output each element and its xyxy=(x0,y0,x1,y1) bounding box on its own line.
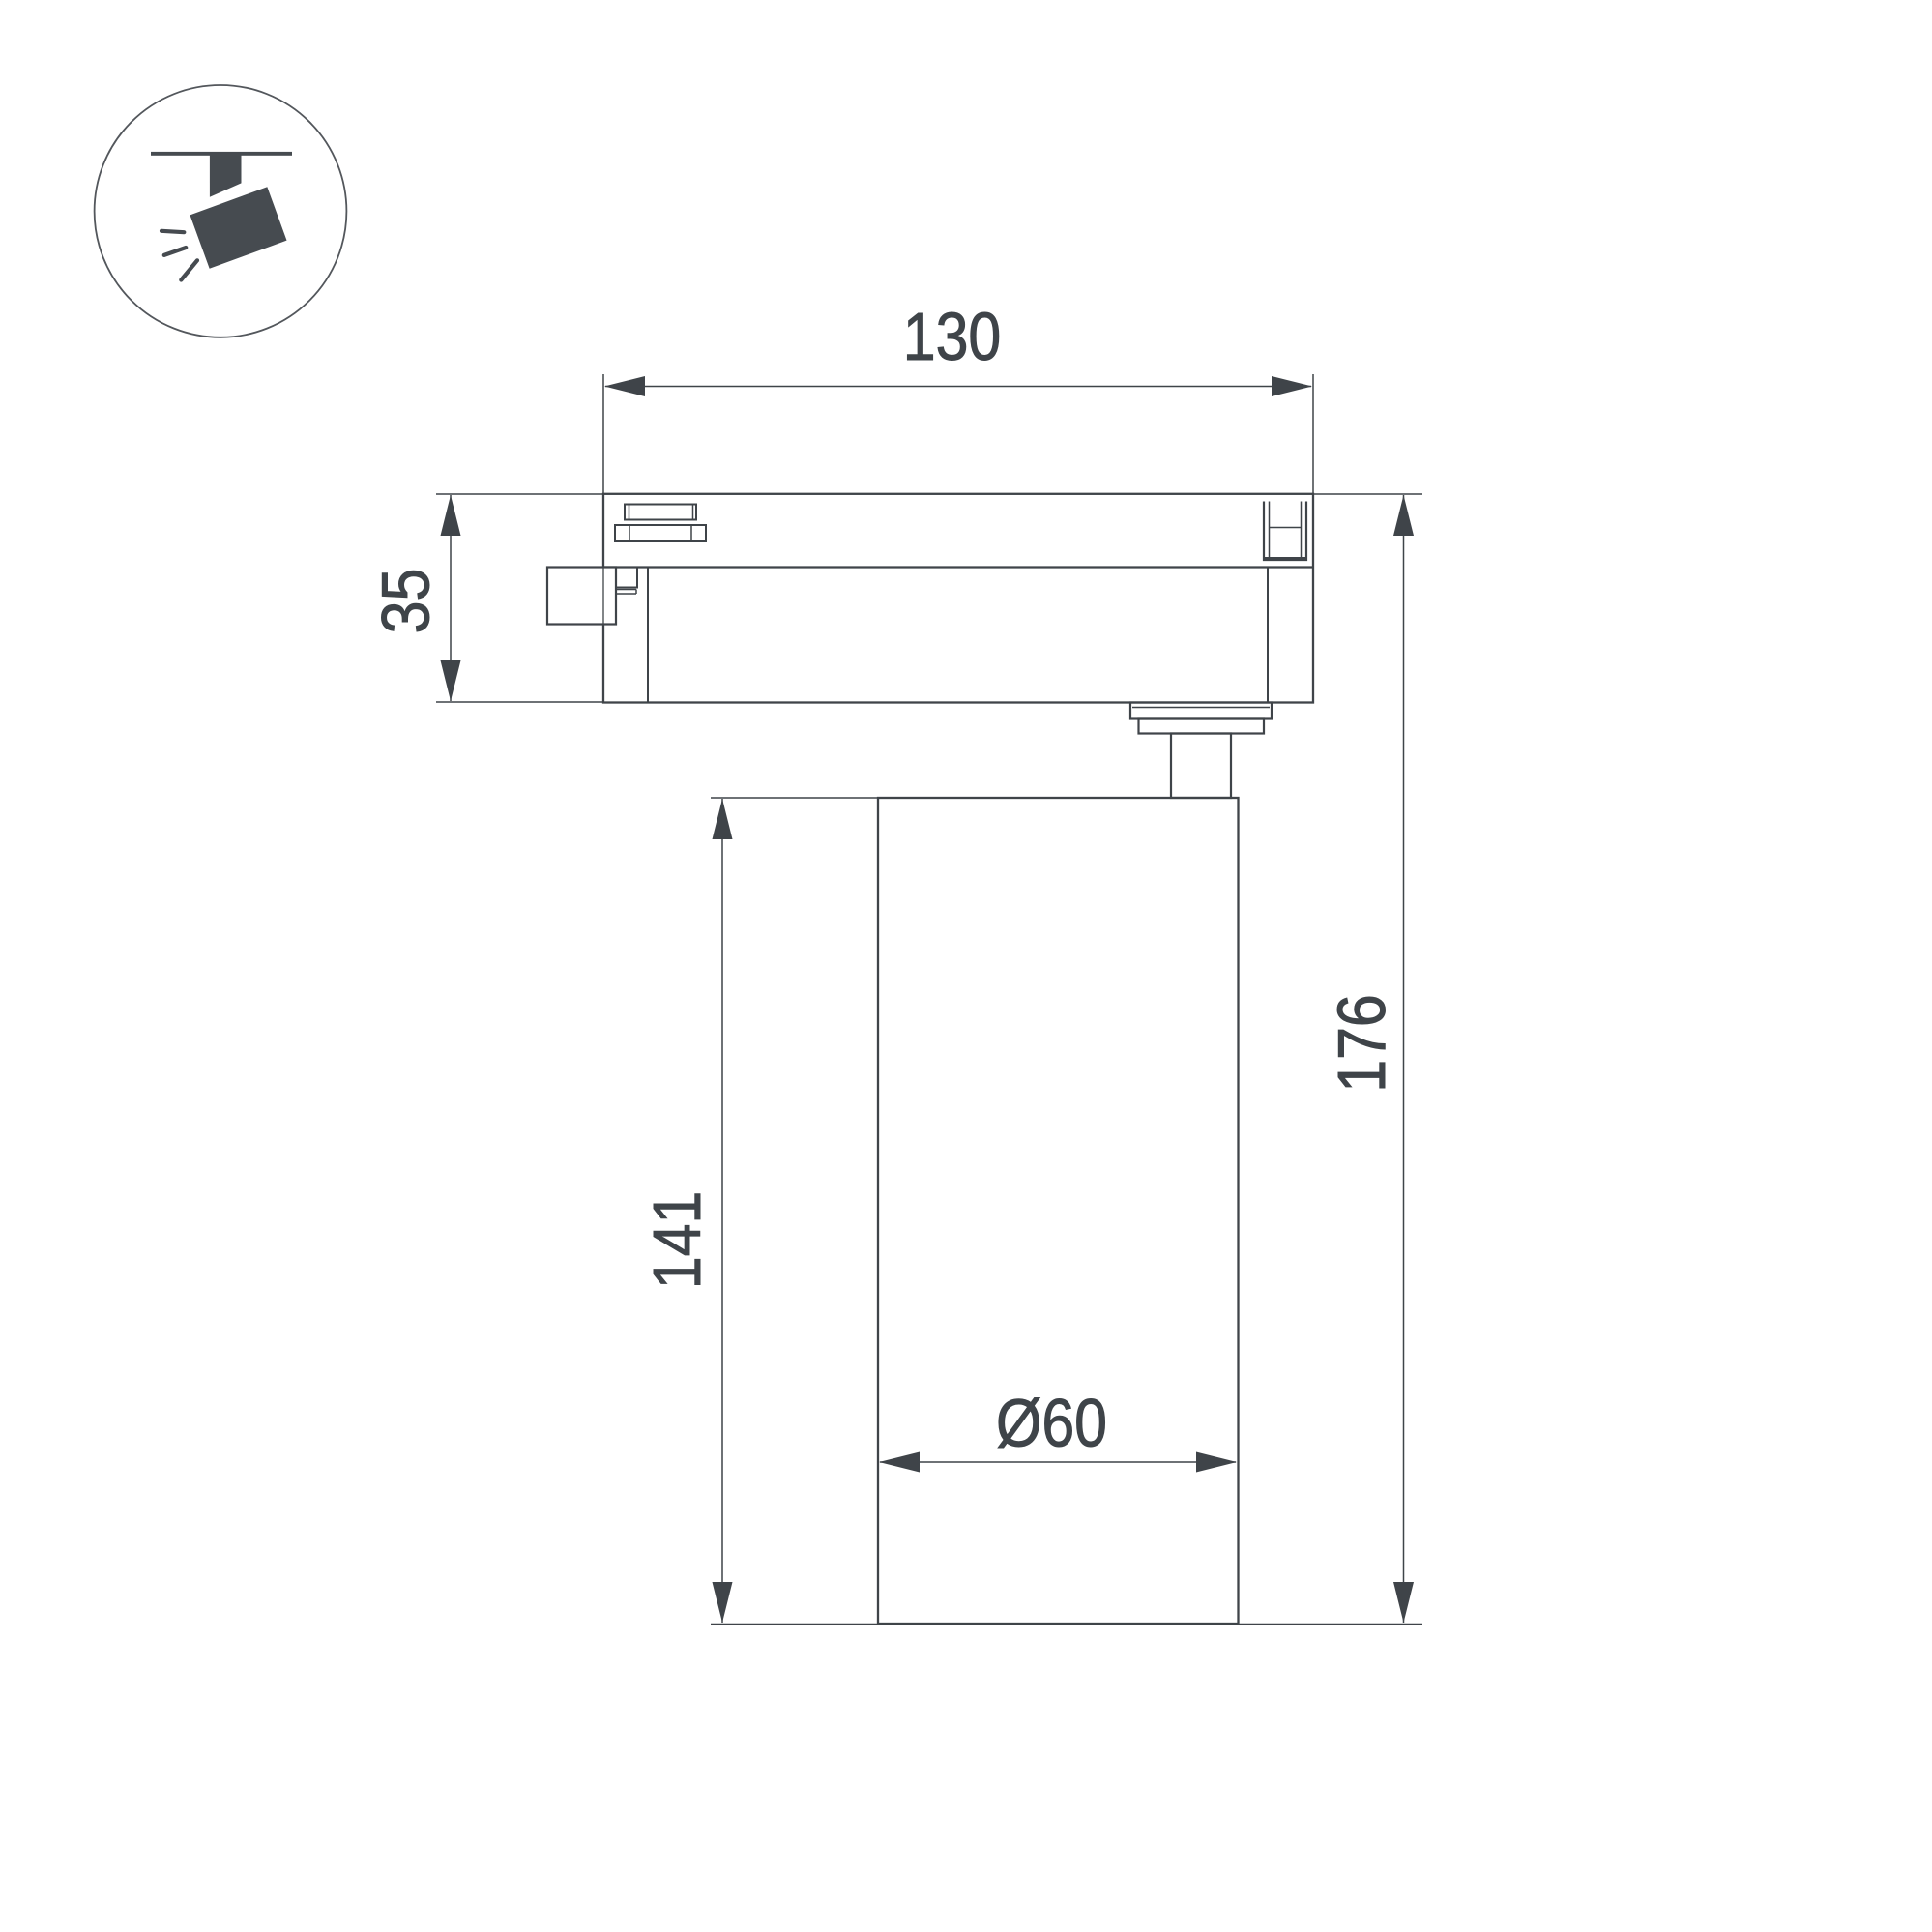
svg-text:35: 35 xyxy=(368,569,444,634)
svg-text:130: 130 xyxy=(903,299,1002,374)
svg-text:141: 141 xyxy=(639,1191,715,1290)
svg-text:Ø60: Ø60 xyxy=(996,1386,1107,1461)
svg-text:176: 176 xyxy=(1324,994,1399,1093)
